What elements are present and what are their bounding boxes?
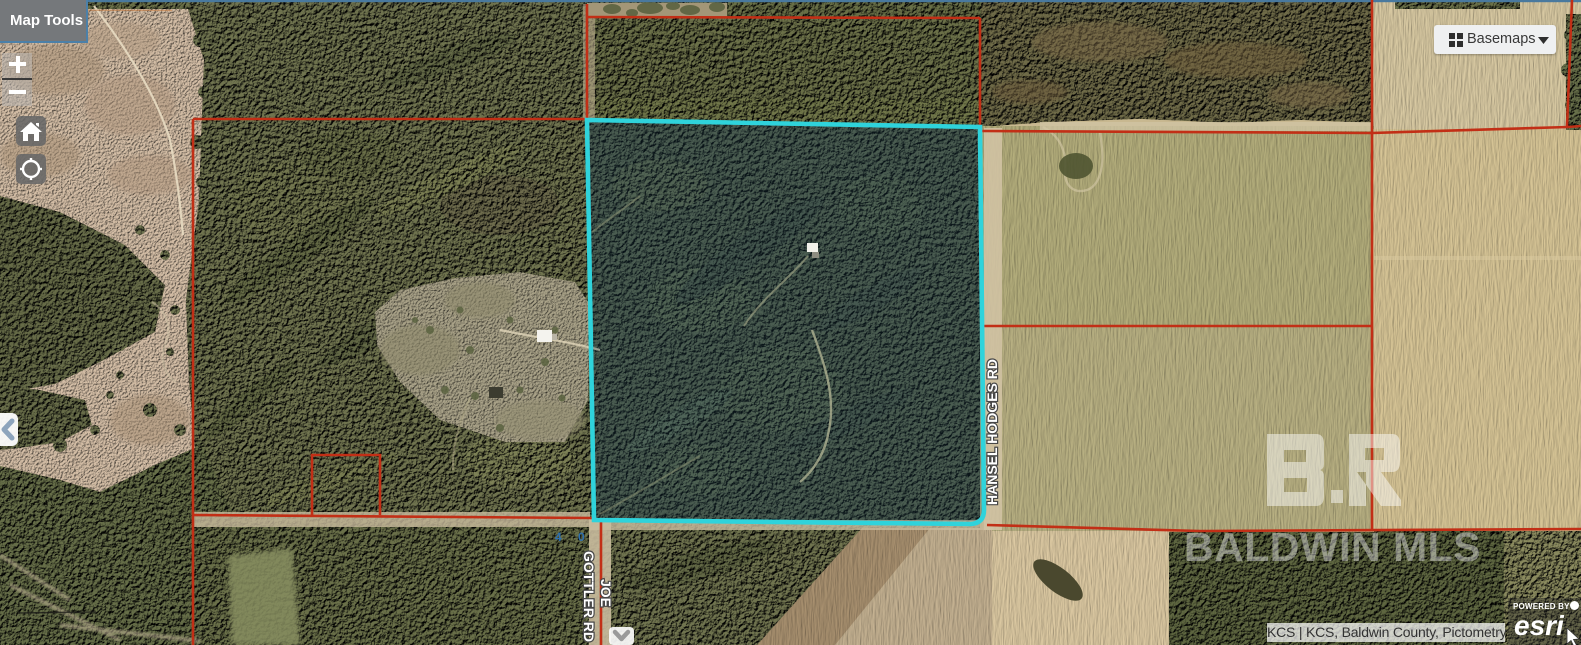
svg-text:0: 0	[578, 530, 585, 544]
svg-text:GOTTLER RD: GOTTLER RD	[581, 551, 597, 642]
svg-text:BALDWIN MLS: BALDWIN MLS	[1184, 524, 1481, 570]
svg-text:JOE: JOE	[598, 579, 614, 607]
svg-text:HANSEL HODGES RD: HANSEL HODGES RD	[984, 359, 1000, 505]
svg-text:4: 4	[555, 530, 562, 544]
